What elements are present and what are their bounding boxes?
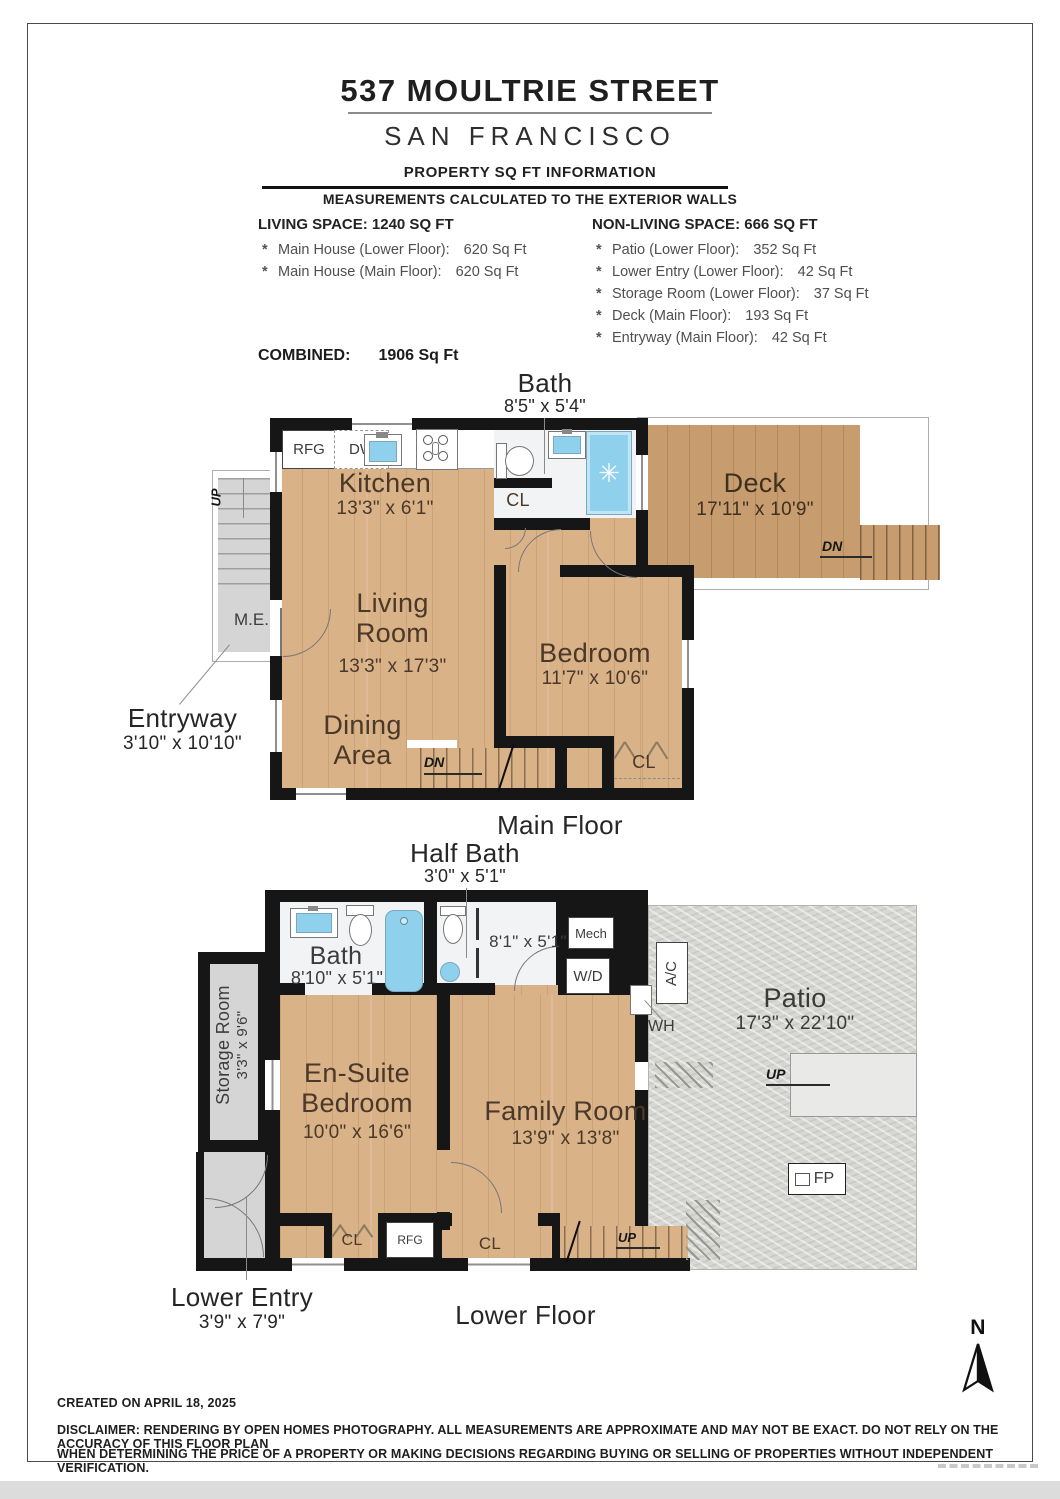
lower-cl-label: CL bbox=[330, 1232, 374, 1250]
window bbox=[270, 452, 282, 492]
mech-label: Mech bbox=[575, 926, 607, 941]
deck-dn-line bbox=[820, 556, 872, 558]
lower-cl2-label: CL bbox=[466, 1234, 514, 1254]
laundry-dims: 8'1" x 5'1" bbox=[484, 932, 572, 952]
measurement-note: MEASUREMENTS CALCULATED TO THE EXTERIOR … bbox=[280, 191, 780, 207]
item-label: Deck (Main Floor): bbox=[612, 305, 731, 327]
lower-bath-sink-basin bbox=[296, 913, 332, 933]
living-space-heading: LIVING SPACE: 1240 SQ FT bbox=[258, 216, 454, 233]
bullet: * bbox=[596, 327, 612, 349]
refrigerator: RFG bbox=[282, 430, 336, 469]
deck-label: Deck bbox=[690, 468, 820, 499]
bath-leader bbox=[544, 418, 545, 474]
bedroom-label: Bedroom bbox=[520, 638, 670, 669]
north-arrow-icon bbox=[958, 1340, 998, 1396]
item-value: 42 Sq Ft bbox=[798, 261, 853, 283]
bath-sink-basin bbox=[553, 436, 581, 454]
water-heater bbox=[630, 985, 652, 1015]
page-subtitle: SAN FRANCISCO bbox=[280, 121, 780, 152]
kitchen-faucet-icon bbox=[376, 432, 388, 438]
list-item: * Main House (Main Floor): 620 Sq Ft bbox=[262, 261, 527, 283]
list-item: * Patio (Lower Floor): 352 Sq Ft bbox=[596, 239, 869, 261]
page-title: 537 MOULTRIE STREET bbox=[180, 73, 880, 109]
entry-up-leader bbox=[243, 478, 244, 518]
bullet: * bbox=[596, 239, 612, 261]
bath-dims: 8'5" x 5'4" bbox=[480, 396, 610, 417]
dining-area-label-line2: Area bbox=[295, 740, 430, 771]
ensuite-dims: 10'0" x 16'6" bbox=[272, 1122, 442, 1144]
mech-closet: Mech bbox=[568, 917, 614, 949]
item-value: 620 Sq Ft bbox=[456, 261, 519, 283]
page-bottom-strip bbox=[0, 1481, 1060, 1499]
wall bbox=[280, 1213, 330, 1226]
cl-label: CL bbox=[496, 490, 540, 511]
kitchen-sink-basin bbox=[369, 441, 397, 462]
item-label: Storage Room (Lower Floor): bbox=[612, 283, 800, 305]
window bbox=[270, 700, 282, 752]
wall bbox=[378, 1213, 386, 1258]
main-dn-line bbox=[424, 773, 482, 775]
family-room-label: Family Room bbox=[468, 1096, 663, 1127]
wall bbox=[270, 418, 648, 430]
fp-inner-icon bbox=[795, 1173, 810, 1186]
storage-dims: 3'3" x 9'6" bbox=[234, 981, 251, 1109]
list-item: * Main House (Lower Floor): 620 Sq Ft bbox=[262, 239, 527, 261]
bullet: * bbox=[262, 239, 278, 261]
wall bbox=[494, 478, 552, 488]
non-living-space-list: * Patio (Lower Floor): 352 Sq Ft * Lower… bbox=[596, 239, 869, 349]
entryway-dims: 3'10" x 10'10" bbox=[95, 733, 270, 755]
lower-up-line bbox=[616, 1247, 660, 1249]
bullet: * bbox=[596, 305, 612, 327]
deck-dn-label: DN bbox=[822, 538, 842, 554]
item-label: Lower Entry (Lower Floor): bbox=[612, 261, 784, 283]
lower-entry-dims: 3'9" x 7'9" bbox=[152, 1312, 332, 1334]
family-room-dims: 13'9" x 13'8" bbox=[468, 1128, 663, 1150]
lower-bath-faucet-icon bbox=[308, 906, 318, 911]
pocket-door bbox=[476, 908, 479, 940]
lower-rfg-label: RFG bbox=[397, 1233, 422, 1247]
living-room-dims: 13'3" x 17'3" bbox=[310, 656, 475, 678]
patio-up-label: UP bbox=[766, 1066, 785, 1082]
ensuite-label-line2: Bedroom bbox=[272, 1088, 442, 1119]
bedroom-cl-label: CL bbox=[622, 752, 666, 773]
lower-entry-leader bbox=[246, 1196, 247, 1280]
halfbath-corner-sink bbox=[440, 962, 460, 982]
deck-dims: 17'11" x 10'9" bbox=[660, 499, 850, 521]
list-item: * Deck (Main Floor): 193 Sq Ft bbox=[596, 305, 869, 327]
item-label: Entryway (Main Floor): bbox=[612, 327, 758, 349]
entry-up-label: UP bbox=[209, 488, 224, 506]
halfbath-toilet-bowl bbox=[443, 914, 463, 944]
item-label: Patio (Lower Floor): bbox=[612, 239, 739, 261]
fp-label: FP bbox=[814, 1170, 834, 1188]
created-date: CREATED ON APRIL 18, 2025 bbox=[57, 1396, 236, 1410]
storage-name: Storage Room bbox=[213, 981, 234, 1109]
item-label: Main House (Lower Floor): bbox=[278, 239, 450, 261]
entryway-label: Entryway bbox=[95, 703, 270, 734]
bullet: * bbox=[596, 283, 612, 305]
bullet: * bbox=[262, 261, 278, 283]
storage-room-label: Storage Room 3'3" x 9'6" bbox=[213, 981, 251, 1109]
list-item: * Entryway (Main Floor): 42 Sq Ft bbox=[596, 327, 869, 349]
item-value: 37 Sq Ft bbox=[814, 283, 869, 305]
toilet-bowl bbox=[505, 446, 534, 476]
item-value: 620 Sq Ft bbox=[464, 239, 527, 261]
deck-stairs bbox=[860, 525, 940, 580]
pocket-door bbox=[476, 948, 479, 978]
combined-label: COMBINED: bbox=[258, 347, 350, 365]
combined-value: 1906 Sq Ft bbox=[378, 347, 458, 365]
wh-label: WH bbox=[648, 1018, 675, 1036]
lower-entry-label: Lower Entry bbox=[152, 1282, 332, 1313]
patio-dims: 17'3" x 22'10" bbox=[712, 1013, 878, 1035]
wall bbox=[265, 890, 648, 902]
bullet: * bbox=[596, 261, 612, 283]
living-room-label-line2: Room bbox=[310, 618, 475, 649]
rfg-label: RFG bbox=[293, 441, 325, 458]
floor-plan-page: 537 MOULTRIE STREET SAN FRANCISCO PROPER… bbox=[0, 0, 1060, 1499]
wall bbox=[424, 902, 437, 983]
living-space-list: * Main House (Lower Floor): 620 Sq Ft * … bbox=[262, 239, 527, 283]
half-bath-label: Half Bath bbox=[380, 838, 550, 869]
stove-center-icon bbox=[432, 442, 439, 455]
kitchen-dims: 13'3" x 6'1" bbox=[320, 498, 450, 520]
kitchen-label: Kitchen bbox=[320, 468, 450, 499]
half-bath-leader bbox=[466, 888, 467, 958]
half-bath-dims: 3'0" x 5'1" bbox=[400, 866, 530, 887]
main-floor-label: Main Floor bbox=[480, 810, 640, 841]
tub-drain-icon bbox=[400, 917, 408, 925]
compass-n-label: N bbox=[958, 1316, 998, 1340]
shower-drain-icon: ✳ bbox=[598, 458, 620, 489]
burner-icon bbox=[438, 435, 448, 445]
window bbox=[682, 640, 694, 688]
lower-bath-dims: 8'10" x 5'1" bbox=[278, 968, 396, 989]
wall bbox=[437, 983, 495, 995]
non-living-space-heading: NON-LIVING SPACE: 666 SQ FT bbox=[592, 216, 818, 233]
fire-pit: FP bbox=[788, 1163, 846, 1195]
wall bbox=[494, 565, 506, 748]
living-room-label-line1: Living bbox=[310, 588, 475, 619]
item-value: 42 Sq Ft bbox=[772, 327, 827, 349]
combined-total: COMBINED: 1906 Sq Ft bbox=[258, 347, 458, 365]
lower-floor-label: Lower Floor bbox=[438, 1300, 613, 1331]
list-item: * Lower Entry (Lower Floor): 42 Sq Ft bbox=[596, 261, 869, 283]
window bbox=[292, 1258, 344, 1271]
wall bbox=[602, 748, 614, 790]
window bbox=[296, 788, 346, 800]
lower-up-label: UP bbox=[618, 1230, 636, 1245]
patio-label: Patio bbox=[740, 983, 850, 1014]
burner-icon bbox=[438, 451, 448, 461]
lower-bath-label: Bath bbox=[300, 942, 372, 971]
section-heading: PROPERTY SQ FT INFORMATION bbox=[330, 164, 730, 181]
disclaimer-line2: WHEN DETERMINING THE PRICE OF A PROPERTY… bbox=[57, 1447, 1007, 1475]
gate-opening bbox=[635, 1062, 648, 1090]
bedroom-dims: 11'7" x 10'6" bbox=[520, 668, 670, 690]
gate-hatch bbox=[655, 1062, 713, 1088]
item-value: 352 Sq Ft bbox=[753, 239, 816, 261]
list-item: * Storage Room (Lower Floor): 37 Sq Ft bbox=[596, 283, 869, 305]
item-label: Main House (Main Floor): bbox=[278, 261, 442, 283]
door-panel bbox=[280, 608, 282, 656]
wall bbox=[555, 748, 567, 790]
section-underline bbox=[262, 186, 728, 189]
wall bbox=[552, 1213, 560, 1258]
dining-area-label-line1: Dining bbox=[295, 710, 430, 741]
bath-faucet-icon bbox=[562, 429, 572, 434]
item-value: 193 Sq Ft bbox=[745, 305, 808, 327]
window bbox=[352, 418, 412, 430]
lower-refrigerator: RFG bbox=[386, 1222, 434, 1258]
bath-label: Bath bbox=[495, 368, 595, 399]
window bbox=[468, 1258, 530, 1271]
patio-up-line bbox=[766, 1084, 830, 1086]
ac-unit: A/C bbox=[656, 942, 688, 1004]
ensuite-label-line1: En-Suite bbox=[272, 1058, 442, 1089]
ac-label: A/C bbox=[663, 960, 680, 985]
closet-rod bbox=[614, 778, 680, 779]
title-underline bbox=[348, 112, 712, 114]
gate-hatch bbox=[686, 1200, 720, 1260]
